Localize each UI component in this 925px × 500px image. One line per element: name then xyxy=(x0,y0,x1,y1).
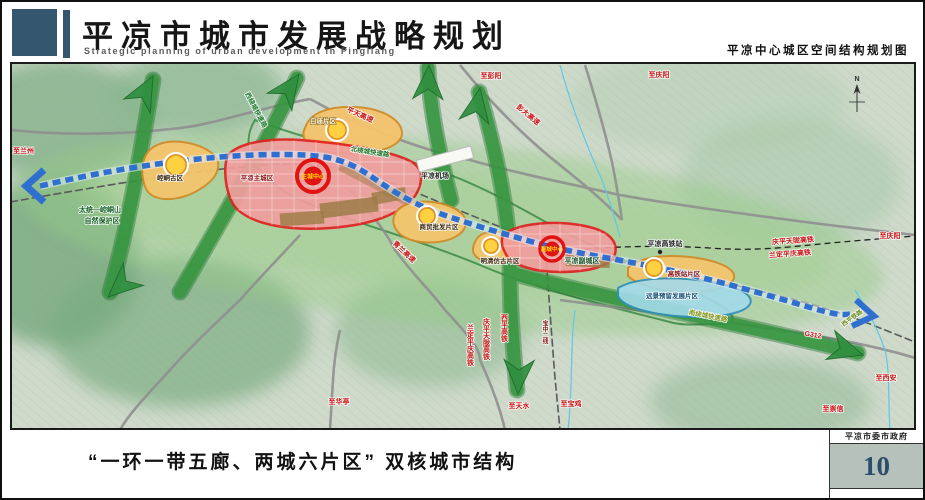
label-to-qingyang-top: 至庆阳 xyxy=(649,70,670,79)
label-to-xian: 至西安 xyxy=(876,373,897,382)
label-baozhong-line: 宝中二线 xyxy=(541,319,548,345)
label-to-baoji: 至宝鸡 xyxy=(561,399,582,408)
label-to-huating: 至华亭 xyxy=(329,397,350,406)
label-to-tianshui: 至天水 xyxy=(509,401,531,410)
label-to-chongxin: 至崇信 xyxy=(823,404,844,413)
page-number: 10 xyxy=(830,444,923,489)
map-caption-title: 平凉中心城区空间结构规划图 xyxy=(727,42,909,58)
gov-box: 平凉市委市政府 10 xyxy=(829,430,923,498)
label-shangmao: 商贸批发片区 xyxy=(420,222,460,231)
planning-document-page: 平凉市城市发展战略规划 Strategic planning of urban … xyxy=(0,0,925,500)
label-yuanjing: 远景预留发展片区 xyxy=(646,291,699,300)
map-svg: 主城中心 副城中心 白庙片区 崆峒古区 平凉主城区 商贸批发片区 明清仿古片区 … xyxy=(10,62,916,430)
label-main-city: 平凉主城区 xyxy=(241,173,274,182)
compass-n-label: N xyxy=(854,76,859,83)
label-kongtong: 崆峒古区 xyxy=(157,173,184,182)
label-nature-reserve-1: 太统—崆峒山 xyxy=(79,205,121,214)
label-sub-center: 副城中心 xyxy=(541,245,564,253)
label-to-pengyang: 至彭阳 xyxy=(481,71,502,80)
page-subtitle-en: Strategic planning of urban development … xyxy=(84,46,396,56)
label-to-lanzhou: 至兰州 xyxy=(13,146,34,155)
label-baimiao: 白庙片区 xyxy=(310,116,337,125)
page-header: 平凉市城市发展战略规划 Strategic planning of urban … xyxy=(2,2,923,62)
label-sub-city: 平凉副城区 xyxy=(565,256,600,265)
label-gaotie-zone: 高铁站片区 xyxy=(668,269,701,278)
label-mingqing: 明清仿古片区 xyxy=(481,256,521,265)
label-nature-reserve-2: 自然保护区 xyxy=(85,216,120,225)
gov-label: 平凉市委市政府 xyxy=(830,430,923,444)
logo-square xyxy=(12,9,57,56)
logo-bar xyxy=(63,10,70,58)
planning-map: 主城中心 副城中心 白庙片区 崆峒古区 平凉主城区 商贸批发片区 明清仿古片区 … xyxy=(10,62,916,430)
label-xiping-hsr-vertical: 西平高铁 xyxy=(501,314,509,343)
structure-caption: “一环一带五廊、两城六片区” 双核城市结构 xyxy=(88,430,517,490)
label-main-center: 主城中心 xyxy=(301,173,325,181)
label-airport: 平凉机场 xyxy=(421,171,449,180)
hsr-station-dot xyxy=(658,250,662,254)
page-footer: “一环一带五廊、两城六片区” 双核城市结构 平凉市委市政府 10 xyxy=(2,430,923,498)
label-to-qingyang-right: 至庆阳 xyxy=(880,231,901,240)
label-hsr-station: 平凉高铁站 xyxy=(648,239,683,248)
